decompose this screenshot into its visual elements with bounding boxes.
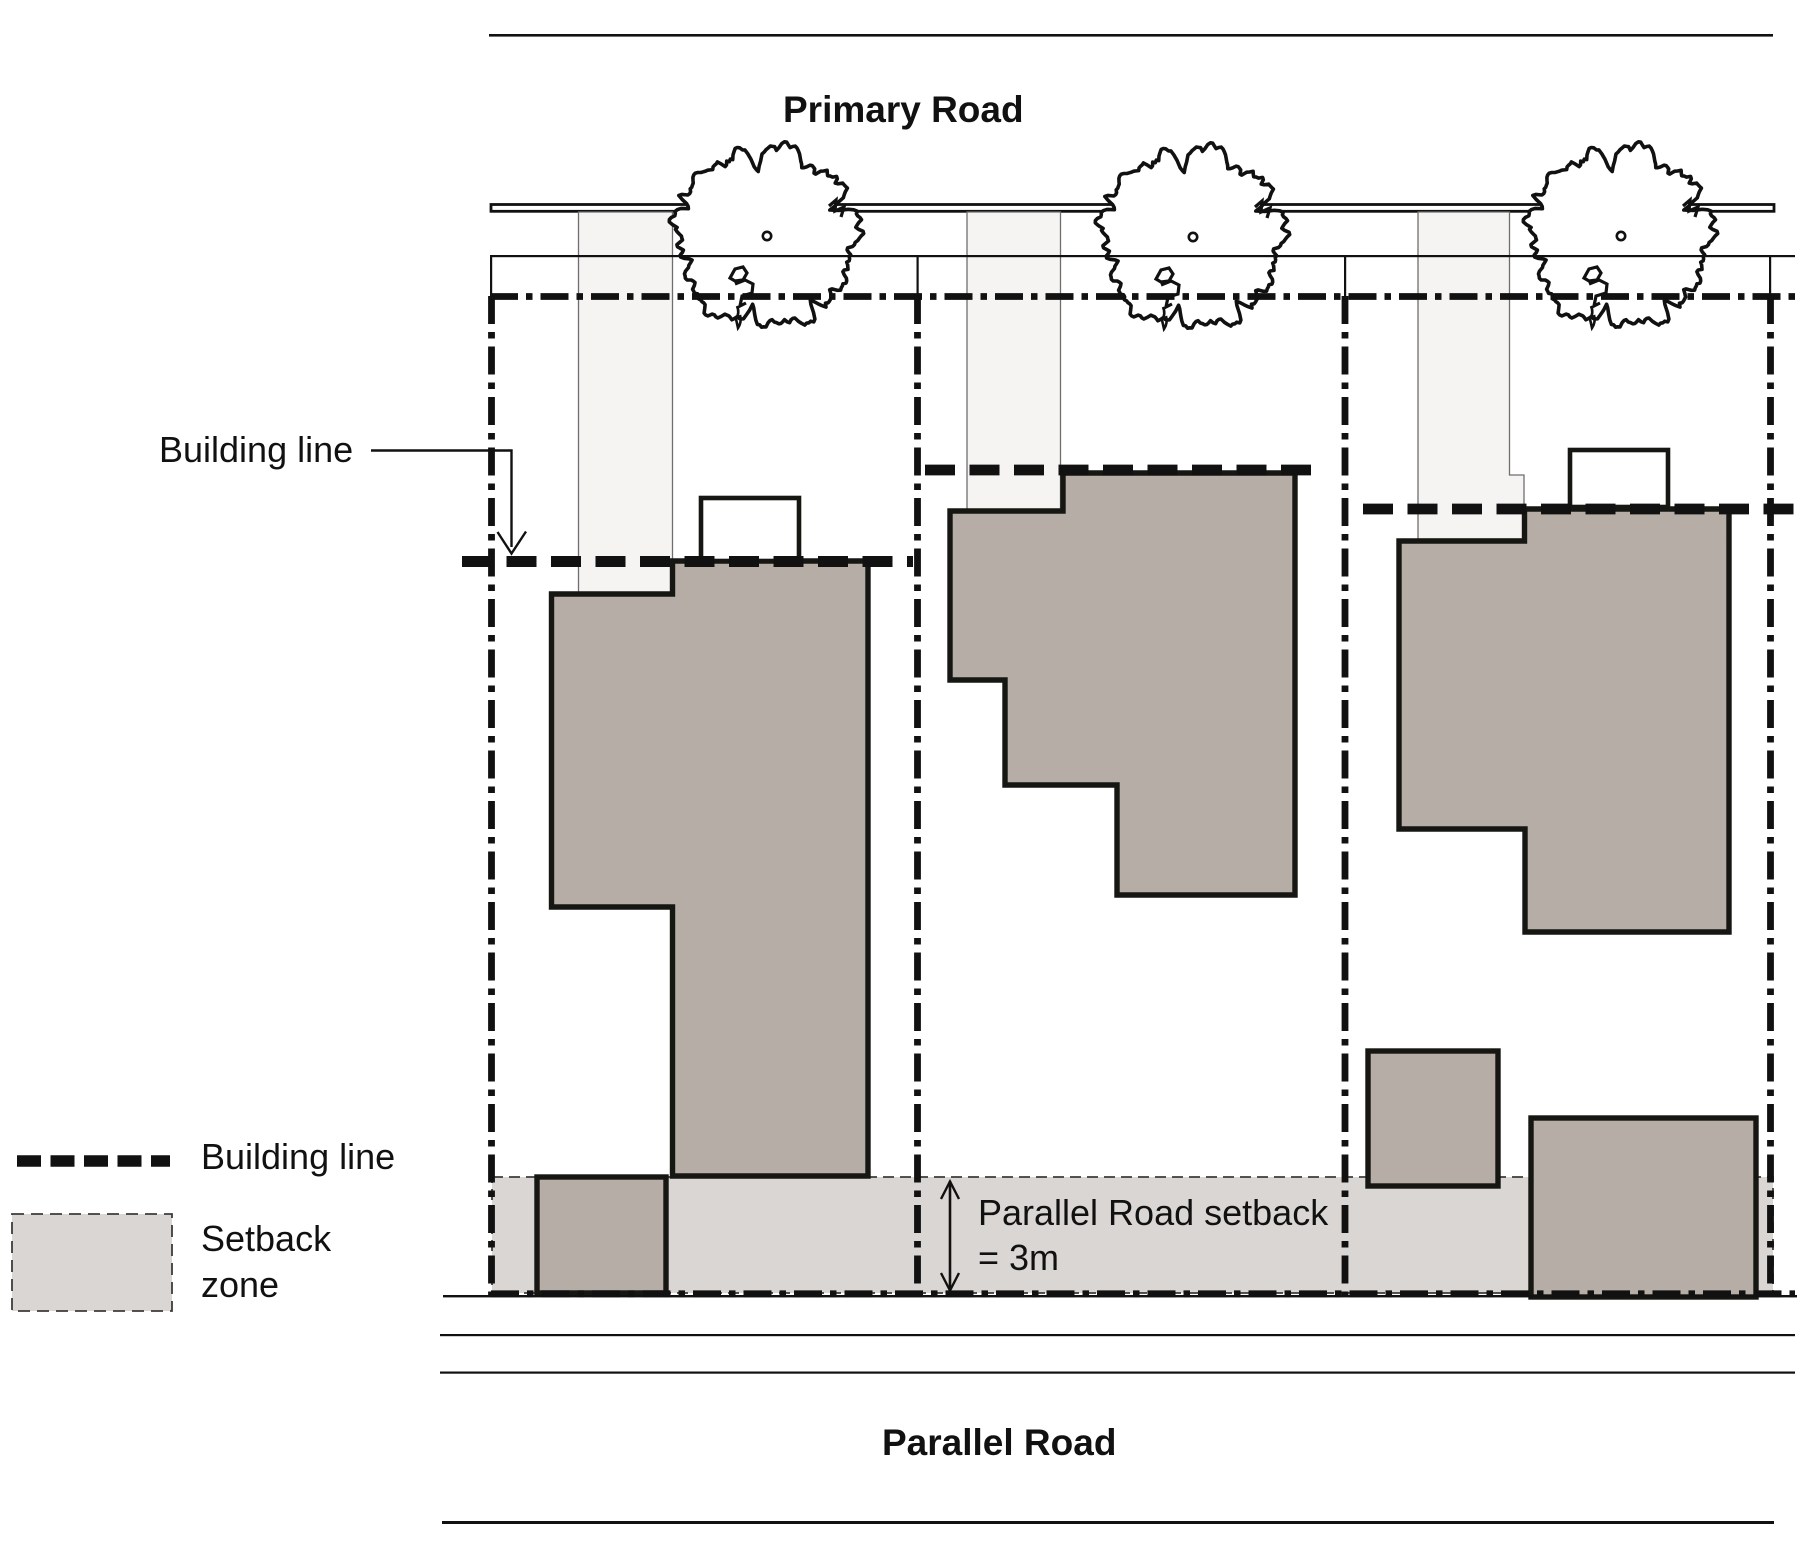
svg-text:Parallel Road setback: Parallel Road setback — [978, 1192, 1329, 1233]
svg-text:Building line: Building line — [159, 429, 353, 470]
svg-text:Setback: Setback — [201, 1218, 332, 1259]
svg-text:Building line: Building line — [201, 1136, 395, 1177]
svg-text:zone: zone — [201, 1264, 279, 1305]
svg-text:Parallel Road: Parallel Road — [882, 1422, 1116, 1463]
svg-text:Primary Road: Primary Road — [783, 89, 1024, 130]
svg-text:= 3m: = 3m — [978, 1237, 1059, 1278]
